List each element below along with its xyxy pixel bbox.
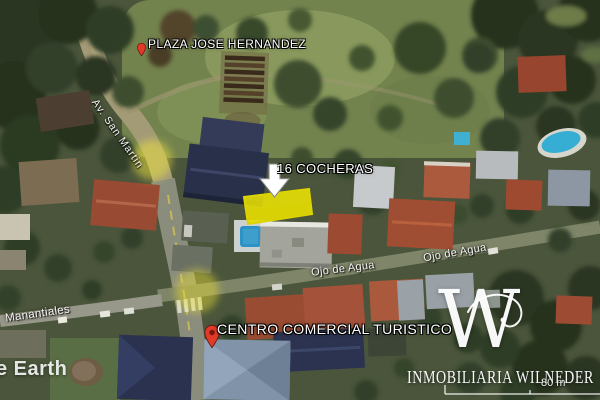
map-scale-label: 80 m	[541, 377, 565, 389]
google-earth-logo-partial: e Earth	[0, 358, 67, 381]
agency-monogram: W	[438, 280, 520, 360]
commercial-center-label: CENTRO COMERCIAL TURISTICO	[217, 321, 452, 337]
red-placemark-icon-small[interactable]	[137, 42, 146, 57]
agency-name-watermark: INMOBILIARIA WILNEDER	[407, 369, 594, 389]
property-label: 16 COCHERAS	[277, 161, 373, 176]
satellite-map-canvas[interactable]: PLAZA JOSE HERNANDEZ 16 COCHERAS CENTRO …	[0, 0, 600, 400]
plaza-label: PLAZA JOSE HERNANDEZ	[148, 37, 306, 51]
